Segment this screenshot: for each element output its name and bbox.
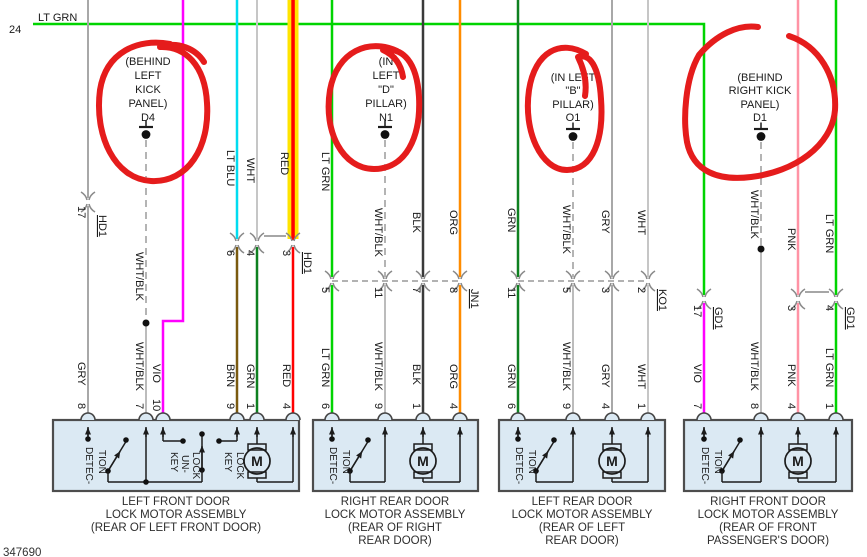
ground-d1-line3: PANEL): [741, 99, 780, 111]
lock-label-box1a: LOCK: [190, 452, 201, 480]
wire-label-blk-l: BLK: [410, 364, 422, 385]
wire-label-lt-grn-u4: LT GRN: [823, 214, 835, 253]
wire-label-org-u: ORG: [447, 210, 459, 235]
conn-pin-17-gd1: 17: [691, 305, 703, 317]
conn-name-gd1-a: GD1: [712, 307, 724, 330]
box3-caption-2: LOCK MOTOR ASSEMBLY: [512, 509, 653, 521]
detec-label-box2: DETEC-: [327, 447, 338, 484]
pin-7-box1: 7: [133, 403, 145, 409]
pin-1-box3: 1: [635, 403, 647, 409]
wire-label-vio-l2: VIO: [691, 364, 703, 383]
box3-caption-4: REAR DOOR): [545, 535, 619, 547]
ground-symbols: [139, 121, 768, 141]
pin-8-box4: 8: [748, 403, 760, 409]
box4-caption-2: LOCK MOTOR ASSEMBLY: [698, 509, 839, 521]
wire-label-lt-grn-l2: LT GRN: [319, 348, 331, 387]
ground-n1-line2: LEFT: [373, 70, 400, 82]
ground-d4-code: D4: [141, 112, 155, 124]
lock-label-box1b: LOCK: [234, 452, 245, 480]
motor-label-box4: M: [792, 453, 804, 469]
pin-8-box1: 8: [75, 403, 87, 409]
pin-9-box2: 9: [372, 403, 384, 409]
wire-label-pnk-u: PNK: [785, 228, 797, 251]
conn-name-hd1-b: HD1: [301, 252, 313, 274]
tion-label-box1: TION: [96, 450, 107, 474]
wire-label-whtblk-l-d1: WHT/BLK: [748, 342, 760, 392]
motor-label-box2: M: [417, 453, 429, 469]
box4-caption-3: (REAR OF FRONT: [719, 522, 817, 534]
wire-label-grn-u2: GRN: [505, 208, 517, 233]
tion-label-box4: TION: [712, 450, 723, 474]
wire-label-grn-l2: GRN: [505, 364, 517, 389]
box2-caption-4: REAR DOOR): [358, 535, 432, 547]
conn-name-gd1-b: GD1: [844, 307, 856, 330]
connector-symbols: [81, 192, 843, 309]
ground-o1-line3: PILLAR): [552, 99, 594, 111]
page-ref: 24: [9, 24, 21, 36]
pin-9-box1: 9: [224, 403, 236, 409]
detec-label-box3: DETEC-: [513, 447, 524, 484]
wire-label-red-l: RED: [280, 364, 292, 387]
un-label-box1: UN-: [179, 455, 190, 473]
box1-caption-1: LEFT FRONT DOOR: [122, 496, 230, 508]
box4-caption-1: RIGHT FRONT DOOR: [710, 496, 826, 508]
conn-pin-7-jn1: 7: [410, 287, 422, 293]
ground-o1-line2: "B": [565, 85, 580, 97]
pin-4-box4: 4: [785, 403, 797, 409]
pin-6-box3: 6: [505, 403, 517, 409]
pin-10-box1: 10: [150, 399, 162, 411]
ground-o1-code: O1: [566, 112, 581, 124]
wire-red-highlighted: [288, 0, 299, 420]
box4-caption-4: PASSENGER'S DOOR): [707, 535, 829, 547]
ground-n1-line3: "D": [378, 84, 394, 96]
box2-caption-3: (REAR OF RIGHT: [348, 522, 442, 534]
wire-label-whtblk-l-d4: WHT/BLK: [133, 342, 145, 392]
conn-name-jn1: JN1: [468, 289, 480, 309]
motor-label-box3: M: [606, 453, 618, 469]
conn-pin-5-jn1: 5: [319, 287, 331, 293]
wire-label-pnk-l: PNK: [785, 364, 797, 387]
wire-label-whtblk-l-n1: WHT/BLK: [372, 342, 384, 392]
conn-pin-5-ko1: 5: [560, 287, 572, 293]
ground-o1-icon: [566, 123, 580, 141]
pin-7-box4: 7: [691, 403, 703, 409]
conn-pin-2-ko1: 2: [635, 287, 647, 293]
wire-label-vio-l1: VIO: [150, 364, 162, 383]
box2-caption-2: LOCK MOTOR ASSEMBLY: [325, 509, 466, 521]
conn-pin-3-hd1: 3: [280, 250, 292, 256]
ground-d1-line1: (BEHIND: [737, 72, 782, 84]
conn-pin-4-hd1: 4: [244, 250, 256, 256]
conn-pin-17-hd1: 17: [75, 206, 87, 218]
pin-1-box1: 1: [244, 403, 256, 409]
pin-9-box3: 9: [560, 403, 572, 409]
wire-label-whtblk-u-n1: WHT/BLK: [372, 208, 384, 258]
box2-caption-1: RIGHT REAR DOOR: [341, 496, 449, 508]
wire-label-wht-u2: WHT: [635, 210, 647, 235]
wire-label-lt-blu: LT BLU: [224, 150, 236, 186]
connector-gang-lines: [264, 236, 829, 292]
wire-label-gry-l2: GRY: [599, 364, 611, 388]
pin-4-box3: 4: [599, 403, 611, 409]
wire-label-brn-l: BRN: [224, 364, 236, 387]
wiring-diagram: LT GRN 24 347690 (BEHIND LEFT KICK PANEL…: [0, 0, 867, 557]
ground-d4-line4: PANEL): [129, 98, 168, 110]
wire-label-whtblk-u-d1: WHT/BLK: [748, 190, 760, 240]
wire-label-red-u: RED: [278, 152, 290, 175]
wire-label-wht-u1: WHT: [244, 158, 256, 183]
box1-caption-2: LOCK MOTOR ASSEMBLY: [106, 509, 247, 521]
wire-label-org-l: ORG: [447, 364, 459, 389]
tion-label-box3: TION: [526, 450, 537, 474]
conn-pin-11-jn1: 11: [372, 287, 384, 298]
bus-wire-label: LT GRN: [38, 12, 77, 24]
key-label-box1b: KEY: [222, 452, 233, 472]
ground-d4-line3: KICK: [135, 84, 161, 96]
conn-pin-6-hd1: 6: [224, 250, 236, 256]
ground-d4-line2: LEFT: [135, 70, 162, 82]
conn-pin-11-ko1: 11: [505, 287, 517, 298]
ground-o1-line1: (IN LEFT: [551, 72, 596, 84]
wire-label-wht-l2: WHT: [635, 364, 647, 389]
hand-drawn-circle-marks: [99, 27, 835, 182]
wire-label-grn-l1: GRN: [244, 364, 256, 389]
conn-name-ko1: KO1: [656, 289, 668, 311]
motor-label-box1: M: [251, 453, 263, 469]
ground-d1-icon: [754, 123, 768, 141]
ground-n1-code: N1: [379, 112, 393, 124]
wiring-diagram-canvas: LT GRN 24 347690 (BEHIND LEFT KICK PANEL…: [0, 0, 867, 557]
tion-label-box2: TION: [340, 450, 351, 474]
ground-d1-line2: RIGHT KICK: [729, 85, 792, 97]
pin-1-box4: 1: [823, 403, 835, 409]
pin-4-box1: 4: [280, 403, 292, 409]
wire-label-gry-u2: GRY: [599, 210, 611, 234]
wire-label-whtblk-l-o1: WHT/BLK: [560, 342, 572, 392]
wire-label-lt-grn-l4: LT GRN: [823, 348, 835, 387]
wire-label-whtblk-m-d4: WHT/BLK: [133, 252, 145, 302]
detec-label-box4: DETEC-: [699, 447, 710, 484]
conn-pin-3-ko1: 3: [599, 287, 611, 293]
wire-label-lt-grn-u2: LT GRN: [319, 152, 331, 191]
box3-caption-1: LEFT REAR DOOR: [532, 496, 633, 508]
conn-pin-8-jn1: 8: [447, 287, 459, 293]
figure-number: 347690: [3, 547, 41, 557]
wire-label-whtblk-u-o1: WHT/BLK: [560, 205, 572, 255]
box1-caption-3: (REAR OF LEFT FRONT DOOR): [91, 522, 261, 534]
pin-4-box2: 4: [447, 403, 459, 409]
conn-pin-3-gd1: 3: [785, 305, 797, 311]
ground-n1-line4: PILLAR): [365, 98, 407, 110]
pin-6-box2: 6: [319, 403, 331, 409]
conn-pin-4-gd1: 4: [823, 305, 835, 311]
box3-caption-3: (REAR OF LEFT: [539, 522, 625, 534]
key-label-box1a: KEY: [168, 452, 179, 472]
ground-d1-code: D1: [753, 112, 767, 124]
ground-d4-line1: (BEHIND: [125, 56, 170, 68]
wire-label-gry-l: GRY: [75, 362, 87, 386]
conn-name-hd1-a: HD1: [96, 215, 108, 237]
detec-label-box1: DETEC-: [83, 447, 94, 484]
wire-label-blk-u: BLK: [410, 212, 422, 233]
pin-1-box2: 1: [410, 403, 422, 409]
